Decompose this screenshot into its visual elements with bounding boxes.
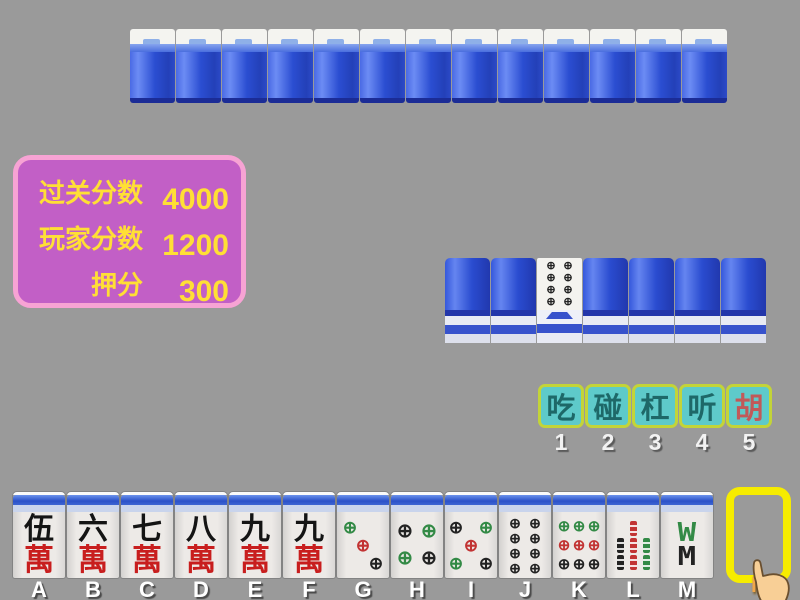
tile-suit-char: 萬 bbox=[186, 545, 216, 576]
action-hotkey-2: 2 bbox=[585, 429, 631, 456]
circle-pip-icon: ⊕ bbox=[449, 518, 464, 536]
bamboo-stick-icon bbox=[630, 555, 637, 570]
action-button-peng[interactable]: 碰 bbox=[585, 384, 631, 428]
circle-pip-icon: ⊕ bbox=[560, 296, 577, 308]
tile-suit-char: 萬 bbox=[78, 545, 108, 576]
score-row: 过关分数 4000 bbox=[18, 168, 241, 214]
stake-label: 押分 bbox=[18, 265, 143, 302]
player-score-value: 1200 bbox=[143, 229, 241, 263]
circle-pip-icon: ⊕ bbox=[557, 555, 572, 574]
circle-pip-icon: ⊕ bbox=[557, 536, 572, 555]
circle-pip-icon: ⊕ bbox=[543, 284, 560, 296]
opponent-tile-back bbox=[544, 29, 589, 103]
opponent-tile-back bbox=[682, 29, 727, 103]
circle-pip-icon: ⊕ bbox=[393, 545, 417, 572]
opponent-tile-back bbox=[498, 29, 543, 103]
circle-pip-icon: ⊕ bbox=[370, 554, 383, 572]
hand-letter-c: C bbox=[121, 577, 173, 600]
opponent-tile-back bbox=[130, 29, 175, 103]
meld-tile-back bbox=[583, 258, 628, 343]
hand-letter-i: I bbox=[445, 577, 497, 600]
opponent-tile-back bbox=[176, 29, 221, 103]
circle-pip-icon: ⊕ bbox=[525, 560, 545, 575]
circle-pip-icon: ⊕ bbox=[505, 560, 525, 575]
circle-pip-icon: ⊕ bbox=[417, 518, 441, 545]
opponent-tile-row bbox=[130, 29, 727, 103]
meld-tile-back bbox=[721, 258, 766, 343]
opponent-tile-back bbox=[268, 29, 313, 103]
hand-tile-f[interactable]: 九萬 bbox=[283, 492, 335, 578]
circle-pip-icon: ⊕ bbox=[344, 518, 357, 536]
hand-letter-f: F bbox=[283, 577, 335, 600]
action-hotkey-row: 12345 bbox=[538, 429, 772, 456]
opponent-tile-back bbox=[636, 29, 681, 103]
action-bar: 吃碰杠听胡 bbox=[538, 384, 772, 428]
player-score-label: 玩家分数 bbox=[18, 219, 143, 256]
tile-rank-char: 伍 bbox=[24, 514, 54, 545]
meld-tile-back bbox=[445, 258, 490, 343]
hand-tile-a[interactable]: 伍萬 bbox=[13, 492, 65, 578]
tile-suit-char: 萬 bbox=[132, 545, 162, 576]
bamboo-pips bbox=[617, 521, 650, 570]
circle-pip-icon: ⊕ bbox=[572, 555, 587, 574]
opponent-tile-back bbox=[222, 29, 267, 103]
hand-letter-row: ABCDEFGHIJKLM bbox=[13, 577, 713, 600]
hand-letter-a: A bbox=[13, 577, 65, 600]
circle-pip-icon: ⊕ bbox=[525, 545, 545, 560]
hand-letter-g: G bbox=[337, 577, 389, 600]
circle-pip-icon: ⊕ bbox=[543, 272, 560, 284]
hand-tile-d[interactable]: 八萬 bbox=[175, 492, 227, 578]
circle-pip-icon: ⊕ bbox=[572, 536, 587, 555]
action-button-hu[interactable]: 胡 bbox=[726, 384, 772, 428]
opponent-tile-back bbox=[360, 29, 405, 103]
opponent-tile-back bbox=[590, 29, 635, 103]
circle-pip-icon: ⊕ bbox=[560, 260, 577, 272]
hand-letter-m: M bbox=[661, 577, 713, 600]
circle-pip-icon: ⊕ bbox=[560, 284, 577, 296]
bamboo-stick-icon bbox=[617, 538, 624, 553]
circle-pip-icon: ⊕ bbox=[557, 517, 572, 536]
hand-tile-c[interactable]: 七萬 bbox=[121, 492, 173, 578]
circle-pip-icon: ⊕ bbox=[587, 536, 602, 555]
tile-suit-char: 萬 bbox=[240, 545, 270, 576]
hand-tile-b[interactable]: 六萬 bbox=[67, 492, 119, 578]
hand-letter-b: B bbox=[67, 577, 119, 600]
bamboo-stick-icon bbox=[630, 521, 637, 536]
bamboo-stick-icon bbox=[630, 538, 637, 553]
opponent-tile-back bbox=[406, 29, 451, 103]
opponent-tile-back bbox=[314, 29, 359, 103]
hand-letter-l: L bbox=[607, 577, 659, 600]
hand-letter-h: H bbox=[391, 577, 443, 600]
cursor-pointer-icon bbox=[742, 556, 796, 600]
tile-rank-char: 八 bbox=[186, 514, 216, 545]
action-button-gang[interactable]: 杠 bbox=[632, 384, 678, 428]
pass-score-value: 4000 bbox=[143, 183, 241, 217]
hand-tile-h[interactable]: ⊕⊕⊕⊕ bbox=[391, 492, 443, 578]
opponent-tile-back bbox=[452, 29, 497, 103]
hand-tile-m[interactable]: WM bbox=[661, 492, 713, 578]
score-row: 押分 300 bbox=[18, 260, 241, 306]
hand-tile-row: 伍萬六萬七萬八萬九萬九萬⊕⊕⊕⊕⊕⊕⊕⊕⊕⊕⊕⊕⊕⊕⊕⊕⊕⊕⊕⊕⊕⊕⊕⊕⊕⊕⊕⊕… bbox=[13, 492, 713, 578]
bamboo-stick-icon bbox=[617, 555, 624, 570]
pass-score-label: 过关分数 bbox=[18, 173, 143, 210]
action-hotkey-5: 5 bbox=[726, 429, 772, 456]
circle-pip-icon: ⊕ bbox=[479, 518, 494, 536]
meld-tile-back bbox=[675, 258, 720, 343]
circle-pip-icon: ⊕ bbox=[525, 515, 545, 530]
circle-pip-icon: ⊕ bbox=[449, 554, 464, 572]
circle-pip-icon: ⊕ bbox=[525, 530, 545, 545]
circle-pip-icon: ⊕ bbox=[543, 260, 560, 272]
tile-rank-char: 九 bbox=[240, 514, 270, 545]
circle-pip-icon: ⊕ bbox=[587, 517, 602, 536]
meld-tile-row: ⊕⊕⊕⊕⊕⊕⊕⊕ bbox=[445, 258, 766, 343]
meld-tile-back bbox=[629, 258, 674, 343]
tile-rank-char: 九 bbox=[294, 514, 324, 545]
meld-tile-back bbox=[491, 258, 536, 343]
action-button-ting[interactable]: 听 bbox=[679, 384, 725, 428]
circle-pip-icon: ⊕ bbox=[572, 517, 587, 536]
circle-pip-icon: ⊕ bbox=[505, 530, 525, 545]
bamboo-pips: WM bbox=[678, 521, 696, 569]
tile-suit-char: 萬 bbox=[294, 545, 324, 576]
hand-letter-e: E bbox=[229, 577, 281, 600]
hand-tile-j[interactable]: ⊕⊕⊕⊕⊕⊕⊕⊕ bbox=[499, 492, 551, 578]
circle-pip-icon: ⊕ bbox=[505, 545, 525, 560]
meld-tile-circle-8: ⊕⊕⊕⊕⊕⊕⊕⊕ bbox=[537, 258, 582, 343]
circle-pip-icon: ⊕ bbox=[479, 554, 494, 572]
circle-pip-icon: ⊕ bbox=[393, 518, 417, 545]
hand-tile-l[interactable] bbox=[607, 492, 659, 578]
hand-tile-g[interactable]: ⊕⊕⊕ bbox=[337, 492, 389, 578]
hand-letter-d: D bbox=[175, 577, 227, 600]
circle-pip-icon: ⊕ bbox=[587, 555, 602, 574]
hand-tile-e[interactable]: 九萬 bbox=[229, 492, 281, 578]
game-table: 过关分数 4000 玩家分数 1200 押分 300 ⊕⊕⊕⊕⊕⊕⊕⊕ 吃碰杠听… bbox=[0, 0, 800, 600]
hand-letter-j: J bbox=[499, 577, 551, 600]
action-hotkey-1: 1 bbox=[538, 429, 584, 456]
score-row: 玩家分数 1200 bbox=[18, 214, 241, 260]
score-panel: 过关分数 4000 玩家分数 1200 押分 300 bbox=[13, 155, 246, 308]
stake-value: 300 bbox=[143, 275, 241, 309]
circle-pip-icon: ⊕ bbox=[505, 515, 525, 530]
circle-pip-icon: ⊕ bbox=[560, 272, 577, 284]
tile-rank-char: 七 bbox=[132, 514, 162, 545]
action-hotkey-3: 3 bbox=[632, 429, 678, 456]
circle-pip-icon: ⊕ bbox=[464, 536, 479, 554]
tile-suit-char: 萬 bbox=[24, 545, 54, 576]
action-hotkey-4: 4 bbox=[679, 429, 725, 456]
bamboo-stick-icon bbox=[643, 555, 650, 570]
hand-tile-i[interactable]: ⊕⊕⊕⊕⊕ bbox=[445, 492, 497, 578]
circle-pip-icon: ⊕ bbox=[357, 536, 370, 554]
circle-pip-icon: ⊕ bbox=[417, 545, 441, 572]
bamboo-chevron-icon: M bbox=[678, 545, 696, 569]
bamboo-stick-icon bbox=[643, 538, 650, 553]
action-button-chi[interactable]: 吃 bbox=[538, 384, 584, 428]
tile-rank-char: 六 bbox=[78, 514, 108, 545]
circle-pip-icon: ⊕ bbox=[543, 296, 560, 308]
hand-letter-k: K bbox=[553, 577, 605, 600]
hand-tile-k[interactable]: ⊕⊕⊕⊕⊕⊕⊕⊕⊕ bbox=[553, 492, 605, 578]
